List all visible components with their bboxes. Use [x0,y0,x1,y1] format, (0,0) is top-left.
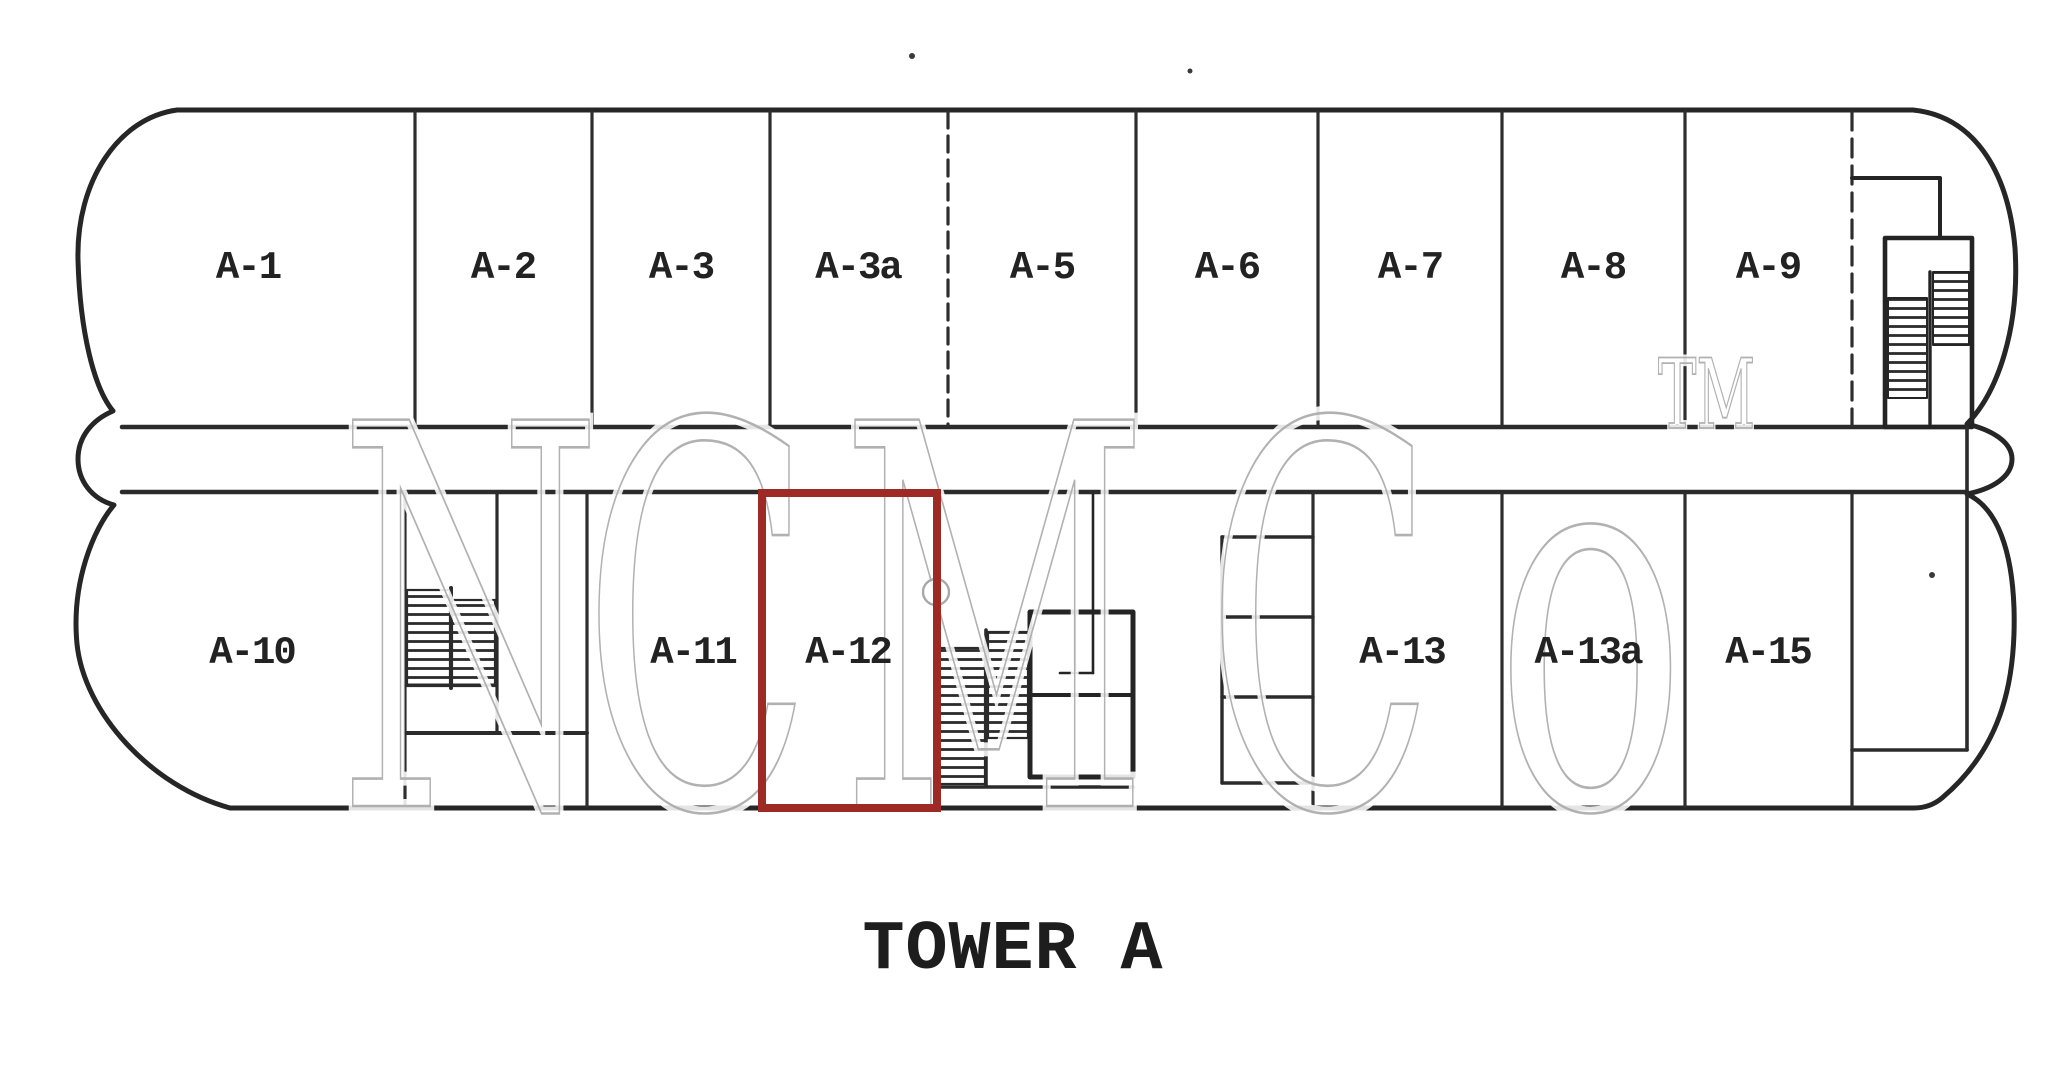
unit-label-a-1: A-1 [216,246,281,290]
unit-label-a-15: A-15 [1725,631,1811,675]
unit-label-a-11: A-11 [650,631,736,675]
unit-label-a-8: A-8 [1561,246,1626,290]
unit-label-a-5: A-5 [1010,246,1075,290]
stairs-top-right [1852,178,1972,427]
speck-a15 [1929,572,1935,578]
unit-label-a-12: A-12 [805,631,891,675]
speck-top-mid [1188,69,1193,74]
unit-label-a-3: A-3 [649,246,714,290]
unit-label-a-7: A-7 [1378,246,1442,290]
watermark: N C M C o TM N C M C o TM [338,315,1755,933]
unit-label-a-3a: A-3a [815,246,902,290]
floor-plan-page: N C M C o TM N C M C o TM A-1 A-2 A-3 A-… [0,0,2048,1071]
stair-tr-flight-a [1888,298,1927,398]
watermark-letter-c1: C [582,315,813,932]
watermark-outline: N C M C o TM [338,315,1755,933]
unit-label-a-10: A-10 [209,631,295,675]
speck-top-center [909,53,915,59]
unit-label-a-13: A-13 [1359,631,1445,675]
stair-tr-entry-wall [1852,178,1940,238]
unit-label-a-6: A-6 [1195,246,1260,290]
stair-tr-flight-b [1933,272,1969,345]
unit-label-a-13a: A-13a [1534,631,1643,675]
tower-title: TOWER A [862,911,1163,990]
floor-plan-canvas: N C M C o TM N C M C o TM A-1 A-2 A-3 A-… [0,0,2048,1071]
watermark-letter-m: M [840,315,1149,932]
right-end-walls [1852,427,1967,750]
unit-label-a-2: A-2 [471,246,536,290]
watermark-letter-c2: C [1205,315,1436,932]
unit-label-a-9: A-9 [1736,246,1801,290]
watermark-letter-n: N [338,315,602,932]
watermark-tm: TM [1658,339,1755,451]
